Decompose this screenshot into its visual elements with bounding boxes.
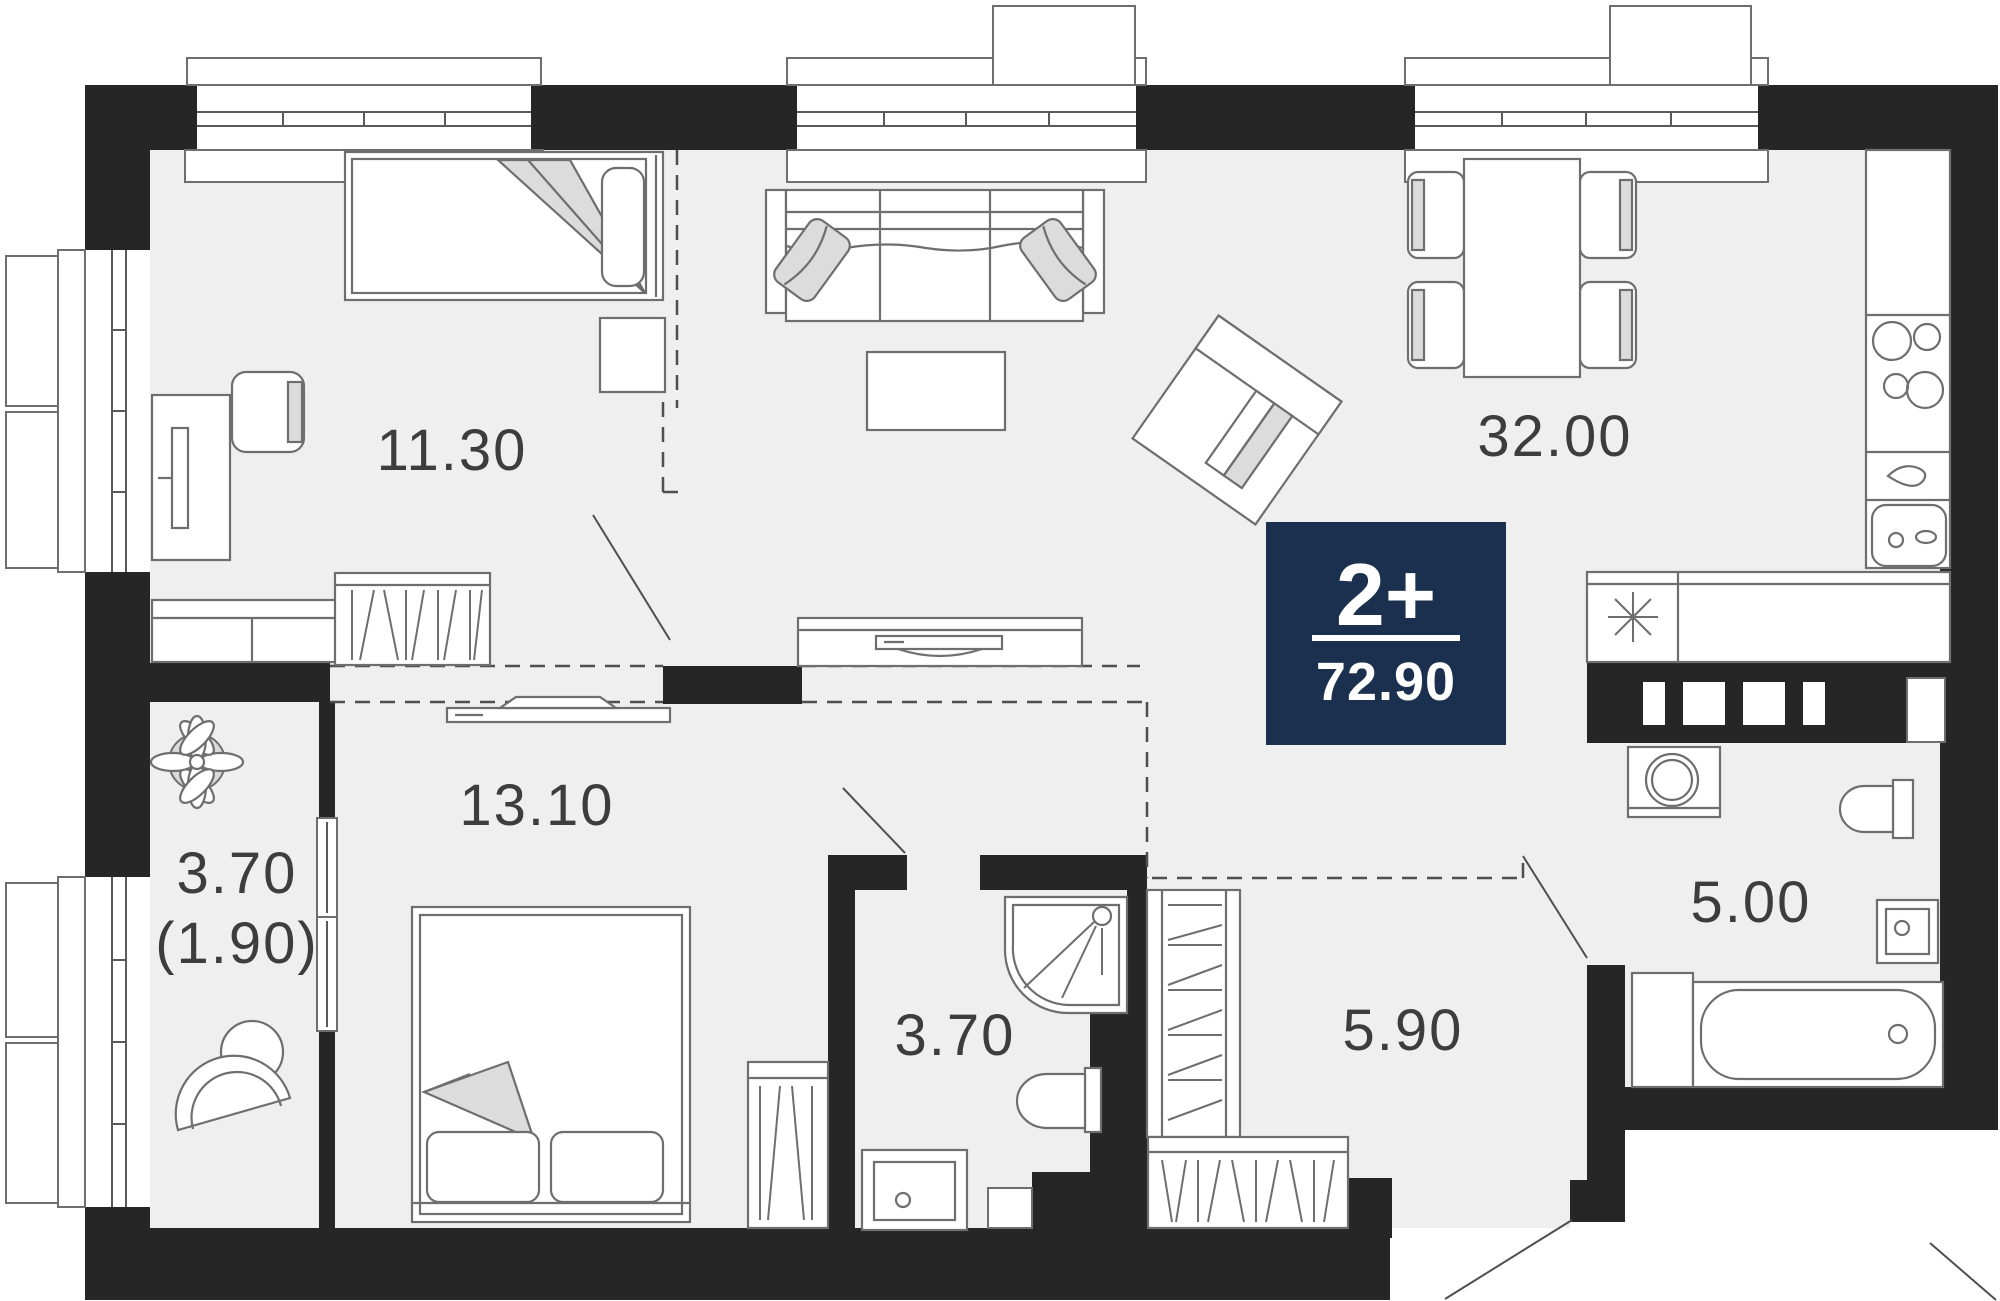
coffee-table-icon <box>867 352 1005 430</box>
toilet-icon-2 <box>1840 780 1913 838</box>
label-bathroom-shower: 3.70 <box>895 1003 1016 1068</box>
label-bedroom-2: 13.10 <box>459 773 614 838</box>
balcony-door <box>317 818 337 1031</box>
desk-chair-icon <box>232 372 304 452</box>
dresser-icon <box>152 600 338 662</box>
double-bed-icon <box>412 907 690 1222</box>
shower-icon <box>1005 897 1127 1013</box>
badge-total-area: 72.90 <box>1316 652 1456 712</box>
kitchen-sink-icon <box>1872 505 1946 566</box>
sofa-icon <box>766 190 1104 321</box>
bath-shelf <box>1632 973 1693 1087</box>
label-hallway: 5.90 <box>1343 998 1464 1063</box>
hall-wardrobe-horizontal <box>1148 1137 1348 1228</box>
label-bathroom-bath: 5.00 <box>1691 870 1812 935</box>
niche <box>988 1188 1032 1228</box>
single-bed-icon <box>345 152 663 300</box>
door-swing-entrance <box>1445 1220 1572 1299</box>
label-balcony-reduced: (1.90) <box>155 911 319 976</box>
door-swing-neighbor <box>1930 1243 1996 1300</box>
hall-wardrobe-vertical <box>1147 890 1240 1137</box>
badge-rooms-count: 2+ <box>1336 545 1436 644</box>
wardrobe-icon <box>335 573 490 665</box>
pillow-icon <box>551 1132 663 1202</box>
wardrobe-icon-2 <box>748 1062 828 1228</box>
balcony-slab-top-2 <box>1610 6 1751 85</box>
pillow-icon <box>427 1132 539 1202</box>
floor-plan-page: 11.30 32.00 13.10 3.70 (1.90) 3.70 5.90 … <box>0 0 2000 1301</box>
vanity-sink-icon-2 <box>1877 900 1938 963</box>
tv-console-icon <box>798 618 1082 666</box>
area-badge: 2+ 72.90 <box>1266 522 1506 745</box>
label-living: 32.00 <box>1477 404 1632 469</box>
floor-plan-canvas: 11.30 32.00 13.10 3.70 (1.90) 3.70 5.90 … <box>0 0 2000 1301</box>
label-bedroom-1: 11.30 <box>377 418 528 483</box>
asterisk-icon <box>1608 592 1658 642</box>
monitor-icon <box>172 428 188 528</box>
vanity-sink-icon <box>862 1150 967 1230</box>
washing-machine-icon <box>1628 747 1720 817</box>
pillow-icon <box>602 168 644 286</box>
bathtub-icon <box>1693 982 1943 1087</box>
badge-divider <box>1312 635 1460 641</box>
nightstand-icon <box>600 318 665 392</box>
desk-icon <box>152 395 230 560</box>
label-balcony: 3.70 <box>177 841 298 906</box>
balcony-slab-top-1 <box>993 6 1135 85</box>
